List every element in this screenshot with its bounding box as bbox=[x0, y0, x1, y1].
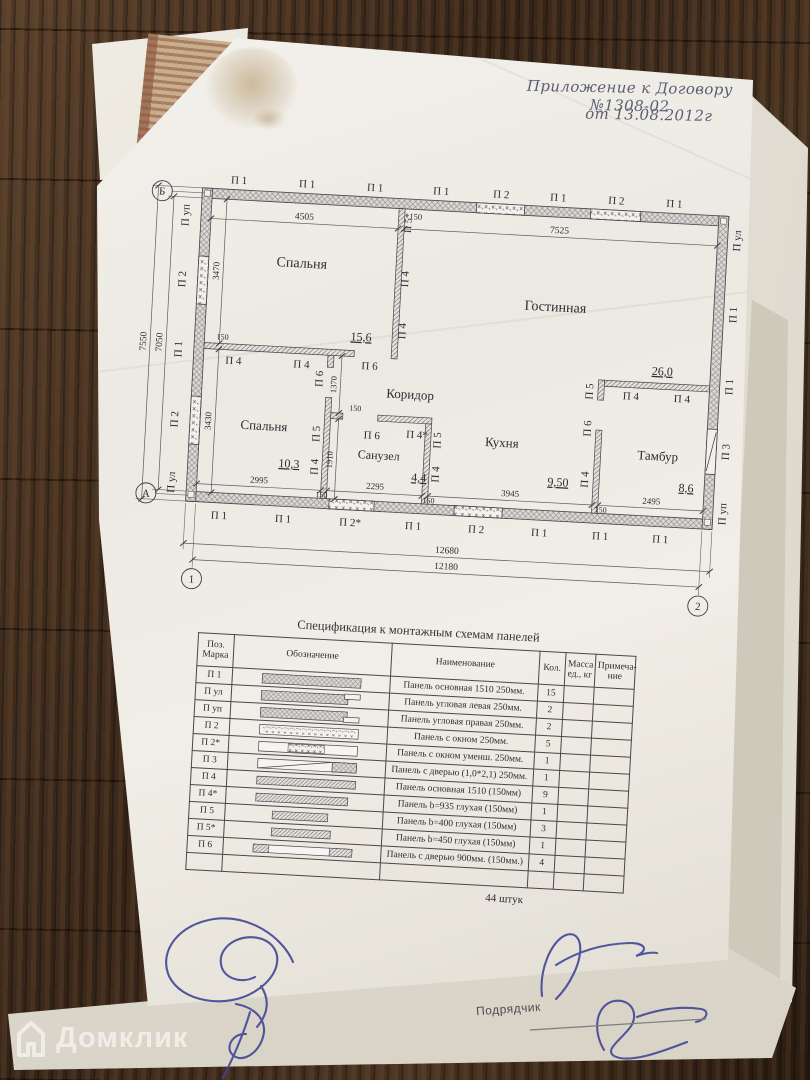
window-left-1 bbox=[196, 256, 209, 305]
room-name: Спальня bbox=[276, 255, 328, 273]
spec-mark: П 3 bbox=[191, 751, 228, 770]
dimension-value: 150 bbox=[216, 332, 228, 342]
wall-bedroom2-right-stub bbox=[327, 355, 334, 367]
panel-label: П 4 bbox=[579, 471, 592, 488]
dimension-value: 150 bbox=[349, 404, 361, 414]
spec-note bbox=[584, 857, 625, 876]
dimension-value: 2995 bbox=[250, 474, 269, 485]
dimension-line bbox=[334, 419, 338, 499]
spec-mass bbox=[553, 872, 584, 891]
dimension-value: 12180 bbox=[434, 562, 459, 573]
spec-mark: П уп bbox=[194, 700, 231, 719]
panel-label: П 1 bbox=[723, 379, 736, 396]
spec-mark: П 4 bbox=[190, 768, 227, 787]
specification-section: Спецификация к монтажным схемам панелей … bbox=[184, 612, 638, 911]
panel-label: П 1 bbox=[299, 178, 316, 191]
panel-label: П 4 bbox=[430, 466, 443, 483]
room-area: 4,4 bbox=[411, 470, 427, 485]
window-top-2 bbox=[590, 209, 641, 222]
spec-mark bbox=[186, 852, 223, 871]
room-area: 10,3 bbox=[278, 456, 300, 471]
spec-qty: 2 bbox=[536, 718, 563, 736]
spec-mark: П 2 bbox=[193, 717, 230, 736]
dimension-value: 3945 bbox=[501, 488, 520, 499]
panel-label: П 1 bbox=[211, 509, 228, 522]
dimension-value: 1910 bbox=[324, 451, 335, 469]
spec-mass bbox=[558, 787, 589, 806]
panel-label: П 6 bbox=[361, 360, 378, 373]
spec-mark: П 6 bbox=[187, 835, 224, 854]
axis-marker-label: 2 bbox=[695, 601, 701, 613]
spec-qty bbox=[527, 871, 554, 889]
window-bottom-small bbox=[329, 499, 375, 511]
room-name: Тамбур bbox=[637, 447, 679, 464]
spec-note bbox=[590, 755, 631, 774]
dimension-value: 4505 bbox=[295, 212, 315, 223]
wall-bathroom-top bbox=[378, 415, 432, 424]
panel-label: П 1 bbox=[405, 520, 422, 533]
spec-qty: 15 bbox=[537, 684, 564, 702]
spec-mass bbox=[561, 736, 592, 755]
spec-mass bbox=[560, 753, 591, 772]
panel-label: П 1 bbox=[367, 182, 384, 195]
dimension-value: 150 bbox=[315, 490, 327, 500]
spec-qty: 1 bbox=[534, 752, 561, 770]
panel-label: П 3 bbox=[720, 443, 733, 460]
spec-note bbox=[593, 687, 634, 706]
spec-mark: П ул bbox=[195, 683, 232, 702]
panel-label: П 1 bbox=[172, 341, 185, 358]
dimension-value: 3470 bbox=[211, 261, 222, 280]
spec-mark: П 4* bbox=[189, 784, 226, 803]
panel-label: П 1 bbox=[666, 198, 683, 211]
spec-qty: 5 bbox=[535, 735, 562, 753]
room-name: Коридор bbox=[386, 386, 434, 404]
dimension-line bbox=[339, 356, 342, 413]
room-area: 9,50 bbox=[547, 475, 569, 490]
window-top-1 bbox=[476, 203, 525, 216]
spec-note bbox=[591, 738, 632, 757]
dimension-value: 3430 bbox=[203, 411, 214, 430]
panel-label: П 4 bbox=[673, 393, 690, 406]
spec-qty: 1 bbox=[529, 837, 556, 855]
panel-label: П 4 bbox=[399, 270, 412, 287]
panel-label: П 2* bbox=[339, 516, 361, 529]
spec-note bbox=[592, 704, 633, 723]
paper-stain-small bbox=[252, 108, 286, 130]
room-area: 26,0 bbox=[651, 364, 673, 379]
spec-mass bbox=[562, 720, 593, 739]
panel-label: П 4 bbox=[396, 322, 409, 339]
dimension-line bbox=[327, 491, 422, 496]
panel-label: П 2 bbox=[176, 271, 189, 288]
dimension-value: 1370 bbox=[328, 376, 339, 394]
spec-qty: 4 bbox=[528, 854, 555, 872]
spec-mass bbox=[556, 821, 587, 840]
spec-qty: 3 bbox=[530, 820, 557, 838]
interior-walls bbox=[196, 198, 718, 519]
spec-mass bbox=[555, 838, 586, 857]
spec-note bbox=[589, 772, 630, 791]
wall-bedroom2-right bbox=[320, 397, 331, 498]
panel-label: П уп bbox=[716, 503, 729, 526]
panel-label: П 5 bbox=[584, 383, 597, 400]
window-left-2 bbox=[189, 396, 202, 445]
spec-mark: П 5 bbox=[189, 801, 226, 820]
spec-total: 44 штук bbox=[414, 888, 594, 910]
spec-qty: 1 bbox=[531, 803, 558, 821]
panel-label: П 6 bbox=[313, 370, 326, 387]
dimension-line bbox=[598, 505, 703, 511]
panel-label: П 1 bbox=[275, 513, 292, 526]
corner-notches bbox=[188, 190, 727, 525]
panel-label: П 1 bbox=[652, 533, 669, 546]
panel-label: П ул bbox=[165, 471, 178, 493]
spec-mass bbox=[563, 686, 594, 705]
dimension-value: 2295 bbox=[366, 481, 385, 492]
spec-note bbox=[588, 789, 629, 808]
spec-qty: 9 bbox=[532, 786, 559, 804]
panel-label: П ул bbox=[731, 229, 744, 251]
panel-label: П 2 bbox=[608, 195, 625, 208]
dimension-value: 7525 bbox=[550, 226, 570, 237]
spec-mass bbox=[562, 703, 593, 722]
spec-mark: П 2* bbox=[192, 734, 229, 753]
room-name: Кухня bbox=[485, 434, 519, 451]
floor-plan: П 1П 1П 1П 1П 2П 1П 2П 1П упП 2П 1П 2П у… bbox=[117, 142, 804, 648]
spec-note bbox=[583, 874, 624, 893]
entrance-door bbox=[705, 429, 717, 475]
panel-label: П 2 bbox=[493, 189, 510, 202]
domclick-house-icon bbox=[14, 1018, 48, 1058]
panel-label: П 1 bbox=[550, 192, 567, 205]
panel-label: П 4 bbox=[622, 390, 639, 403]
dimension-value: 2495 bbox=[642, 496, 661, 507]
spec-mass bbox=[559, 770, 590, 789]
panel-label: П 2 bbox=[468, 523, 485, 536]
col-header-mark: Поз. Марка bbox=[197, 633, 235, 668]
contractor-label: Подрядчик bbox=[476, 1000, 542, 1018]
room-name: Санузел bbox=[357, 447, 400, 463]
spec-note bbox=[586, 823, 627, 842]
wall-bathroom-top-stub bbox=[331, 413, 343, 420]
dimension-value: 7050 bbox=[155, 332, 166, 352]
wall-kitchen-right bbox=[591, 430, 602, 513]
wall-tambour-top bbox=[604, 380, 709, 392]
panel-label: П 6 bbox=[582, 420, 595, 437]
panel-label: П 5 bbox=[431, 432, 444, 449]
axis-marker-label: 1 bbox=[188, 574, 194, 586]
panel-label: П 1 bbox=[531, 527, 548, 540]
dimension-value: 150 bbox=[422, 496, 434, 506]
panel-label: П 1 bbox=[231, 174, 248, 187]
panel-label: П 2 bbox=[169, 411, 182, 428]
photo-scene: Подрядчик Приложение к Договору №1308-02… bbox=[0, 0, 810, 1080]
document-sheet: Приложение к Договору №1308-02 от 13.08.… bbox=[0, 0, 810, 1080]
spec-mark: П 1 bbox=[196, 666, 233, 685]
col-header-note: Примеча- ние bbox=[594, 654, 636, 689]
spec-mass bbox=[554, 855, 585, 874]
panel-label: П 1 bbox=[727, 307, 740, 324]
wall-kitchen-right-stub bbox=[598, 380, 605, 400]
panel-label: П 1 bbox=[433, 185, 450, 198]
spec-note bbox=[587, 806, 628, 825]
handwritten-annotation-line2: от 13.08.2012г bbox=[549, 104, 749, 126]
col-header-mass: Масса ед., кг bbox=[564, 653, 596, 688]
dimension-value: 150 bbox=[594, 505, 606, 515]
panel-label: П 4 bbox=[309, 458, 322, 475]
dimension-value: 7550 bbox=[139, 331, 150, 351]
dimension-value: 150 bbox=[409, 211, 422, 222]
room-area: 8,6 bbox=[678, 481, 694, 496]
axis-marker-label: Б bbox=[159, 186, 166, 198]
domclick-watermark: Домклик bbox=[14, 1018, 188, 1058]
spec-mark: П 5* bbox=[188, 818, 225, 837]
panel-label: П 5 bbox=[310, 425, 323, 442]
panel-label: П уп bbox=[179, 204, 192, 227]
panel-label: П 1 bbox=[592, 530, 609, 543]
col-header-qty: Кол. bbox=[538, 651, 566, 685]
spec-qty: 2 bbox=[536, 701, 563, 719]
dimension-value: 12680 bbox=[435, 546, 460, 557]
spec-table: Поз. Марка Обозначение Наименование Кол.… bbox=[185, 632, 636, 893]
spec-mass bbox=[557, 804, 588, 823]
panel-label: П 4 bbox=[293, 358, 310, 371]
panel-label: П 4* bbox=[406, 429, 428, 442]
panel-label: П 6 bbox=[363, 429, 380, 442]
document-content: Приложение к Договору №1308-02 от 13.08.… bbox=[48, 40, 761, 1039]
wall-bottom bbox=[186, 491, 713, 530]
axis-marker-label: А bbox=[142, 488, 151, 500]
wall-top bbox=[202, 188, 729, 227]
wall-right bbox=[702, 216, 729, 530]
spec-qty: 1 bbox=[533, 769, 560, 787]
room-name: Спальня bbox=[240, 417, 288, 435]
spec-note bbox=[591, 721, 632, 740]
window-bottom bbox=[454, 506, 503, 519]
spec-note bbox=[585, 840, 626, 859]
watermark-text: Домклик bbox=[56, 1022, 188, 1055]
